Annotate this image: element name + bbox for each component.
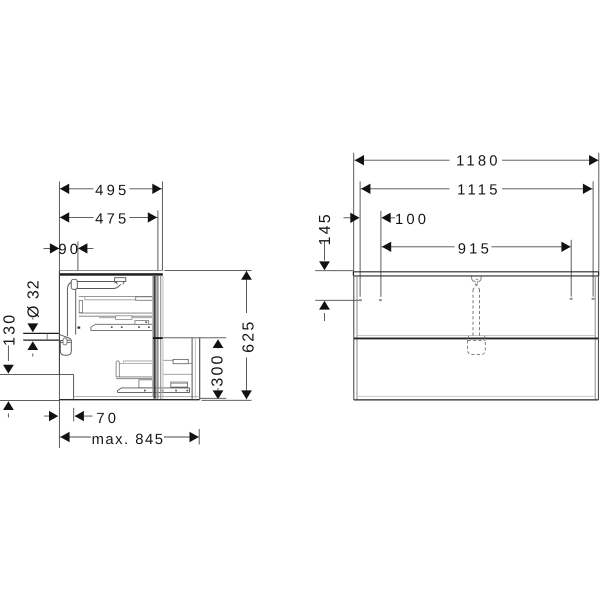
- svg-text:1115: 1115: [457, 183, 501, 199]
- svg-text:90: 90: [58, 242, 81, 258]
- svg-text:130: 130: [2, 313, 19, 346]
- svg-text:100: 100: [395, 212, 429, 228]
- svg-text:915: 915: [458, 241, 492, 257]
- svg-text:Ø 32: Ø 32: [26, 279, 43, 318]
- svg-text:625: 625: [240, 320, 257, 353]
- svg-text:145: 145: [317, 212, 334, 245]
- svg-text:300: 300: [210, 353, 227, 386]
- svg-text:70: 70: [96, 411, 119, 427]
- svg-text:1180: 1180: [456, 154, 501, 170]
- svg-text:475: 475: [95, 212, 129, 228]
- svg-text:max. 845: max. 845: [92, 432, 165, 448]
- svg-text:495: 495: [95, 183, 129, 199]
